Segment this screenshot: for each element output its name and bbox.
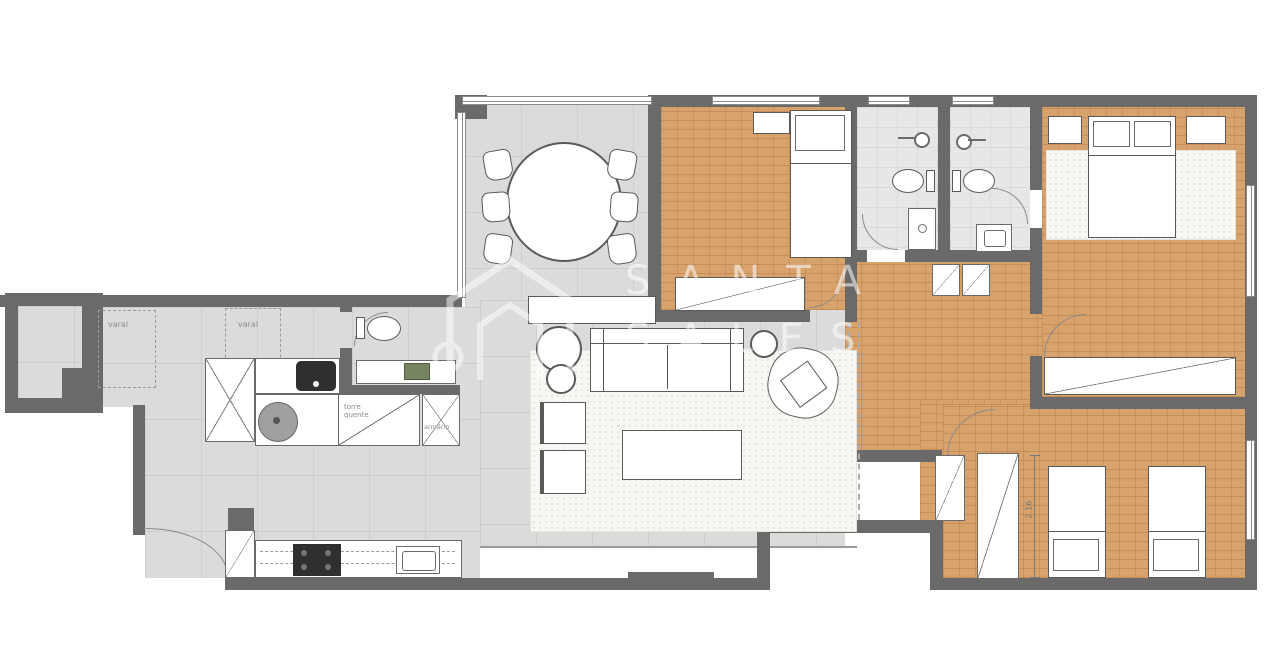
pillow	[1053, 539, 1099, 571]
wardrobe-bedroom3	[977, 453, 1019, 579]
dining-chair	[482, 232, 514, 266]
wall-wc-bottom	[340, 385, 460, 394]
hot-tower-cabinet	[338, 394, 420, 446]
wall-wc-left-low	[340, 348, 352, 388]
wall-master-left-mid	[1030, 228, 1042, 314]
sofa-arm-right	[730, 329, 743, 391]
terrace-divider-line	[480, 546, 857, 548]
sofa-arm-left	[591, 329, 604, 391]
window-dining-top	[462, 96, 652, 105]
dimension-line	[1034, 455, 1045, 578]
clothesline-label: varal	[238, 320, 258, 329]
shower-arm	[898, 137, 916, 139]
window-bedroom3-right	[1246, 440, 1255, 540]
wall-bottom-bedroom3	[930, 578, 1257, 590]
sofa-back	[591, 329, 743, 344]
wall-kitchen-left	[133, 405, 145, 535]
pillow	[1093, 121, 1130, 147]
bed-fold-line	[1089, 155, 1175, 156]
hall-closet	[932, 264, 960, 296]
wall-bedroom1-right-low	[845, 262, 857, 322]
threshold-living-hall-2	[858, 322, 860, 520]
stove-cooktop	[293, 544, 341, 576]
laundry-cabinet	[205, 358, 255, 442]
washing-machine	[296, 361, 336, 391]
floor-plan: 2.16 varal varal torre quente armário	[0, 0, 1280, 645]
kitchen-cabinet	[225, 530, 255, 578]
dining-chair	[606, 232, 638, 266]
wall-step-vertical	[757, 527, 770, 590]
nightstand	[1048, 116, 1082, 144]
wall-nub-kitchen	[228, 508, 254, 530]
plant	[546, 364, 576, 394]
dining-table	[506, 142, 622, 262]
shower-head	[914, 132, 930, 148]
sofa	[590, 328, 744, 392]
shower-head	[956, 134, 972, 150]
single-bed-bedroom3	[1048, 466, 1106, 578]
toilet-bathroom1	[892, 168, 936, 194]
pillow	[1153, 539, 1199, 571]
toilet-wc	[356, 315, 402, 341]
window-bathroom1-top	[868, 96, 910, 105]
single-bed-bedroom1	[790, 110, 852, 258]
window-bedroom1-top	[712, 96, 820, 105]
double-bed-master	[1088, 116, 1176, 238]
wall-bedroom1-bottom	[648, 310, 810, 322]
cabinet-label: armário	[424, 424, 449, 431]
dining-chair	[609, 191, 639, 223]
wall-bath-bottom-right	[905, 250, 1042, 262]
dimension-label: 2.16	[1024, 501, 1033, 519]
wall-dining-right	[648, 95, 661, 322]
wall-master-bottom	[1030, 397, 1257, 409]
cabinet-armario	[422, 394, 460, 446]
shower-arm	[968, 139, 986, 141]
window-master-right	[1246, 185, 1255, 297]
kitchen-sink	[396, 546, 440, 574]
wall-bottom-terrace	[225, 578, 770, 590]
bed-fold-line	[1049, 531, 1105, 532]
vanity-bathroom1	[908, 208, 936, 250]
wardrobe-bedroom1	[675, 277, 805, 311]
toilet-bathroom2	[952, 168, 996, 194]
window-dining-left	[457, 112, 466, 298]
nightstand	[1186, 116, 1226, 144]
closet-bedroom3	[935, 455, 965, 521]
sofa-cushion	[605, 345, 668, 389]
window-bathroom2-top	[952, 96, 994, 105]
clothesline-label: varal	[108, 320, 128, 329]
plant	[750, 330, 778, 358]
wall-wc-left-top	[340, 295, 352, 312]
entry-closet-floor2	[18, 306, 62, 398]
wardrobe-master	[1044, 357, 1236, 395]
hall-closet	[962, 264, 990, 296]
wall-bath-divider	[938, 100, 950, 255]
bedroom1-shelf	[753, 112, 790, 134]
wall-master-left-top	[1030, 95, 1042, 190]
laundry-tub	[258, 402, 298, 442]
side-table	[540, 450, 586, 494]
sideboard	[528, 296, 656, 324]
wc-sink-green	[404, 363, 430, 380]
hot-tower-label: torre quente	[344, 403, 378, 419]
armchair-cushion	[780, 360, 827, 407]
pillow	[1134, 121, 1171, 147]
bed-fold-line	[791, 163, 851, 164]
bed-fold-line	[1149, 531, 1205, 532]
sink-bathroom2	[976, 224, 1012, 252]
single-bed-bedroom3	[1148, 466, 1206, 578]
pillow	[795, 115, 845, 151]
side-table	[540, 402, 586, 444]
dining-chair	[481, 191, 511, 223]
coffee-table	[622, 430, 742, 480]
wall-bedroom3-left	[930, 520, 943, 590]
